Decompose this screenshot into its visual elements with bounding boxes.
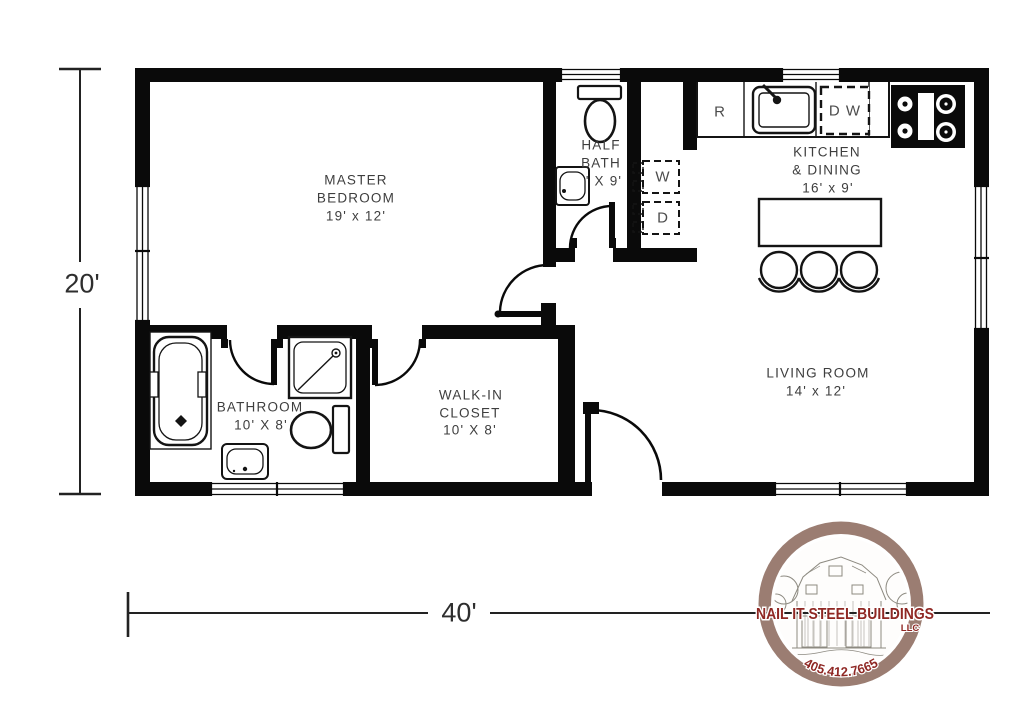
closet-label-1: WALK-IN <box>439 388 503 403</box>
living-room-size: 14' x 12' <box>786 384 846 399</box>
closet-label-2: CLOSET <box>439 406 500 421</box>
jamb-master-door <box>541 303 556 325</box>
refrigerator-label: R <box>714 104 726 121</box>
halfbath-sink <box>556 167 589 205</box>
wall-bath-closet-divider <box>356 339 370 482</box>
window-halfbath-top <box>560 68 622 82</box>
window-kitchen-top <box>781 68 841 82</box>
master-bedroom-label-1: MASTER <box>324 173 387 188</box>
halfbath-toilet <box>578 86 621 142</box>
wall-halfbath-bottom-a <box>543 248 575 262</box>
wall-master-east <box>543 68 556 267</box>
half-bath-label-2: BATH <box>581 156 621 171</box>
jamb-bath-door-left <box>221 339 228 348</box>
kitchen-sink <box>753 85 815 133</box>
jamb-bath-door-right <box>276 339 283 348</box>
island-stools <box>759 252 879 292</box>
kitchen-island <box>759 199 881 246</box>
washer-label: W <box>655 169 670 186</box>
entry-door-opening <box>592 482 662 496</box>
logo-company-text: NAIL IT STEEL BUILDINGS <box>756 606 934 623</box>
kitchen-size: 16' x 9' <box>802 181 854 196</box>
bathtub <box>150 332 211 449</box>
entry-door <box>585 410 661 482</box>
kitchen-label-1: KITCHEN <box>793 145 861 160</box>
kitchen-label-2: & DINING <box>792 163 862 178</box>
master-bedroom-size: 19' x 12' <box>326 209 386 224</box>
closet-size: 10' X 8' <box>443 423 497 438</box>
logo-entity-text: LLC <box>901 623 920 634</box>
window-bathroom-bottom <box>210 482 345 496</box>
shower <box>289 337 351 398</box>
wall-halfbath-east <box>627 68 641 262</box>
width-dimension-label: 40' <box>435 598 482 629</box>
logo <box>756 519 926 689</box>
bathroom-sink <box>222 444 268 479</box>
wall-master-bottom-c <box>422 325 575 339</box>
bathroom-size: 10' X 8' <box>234 418 288 433</box>
window-living-bottom <box>774 482 908 496</box>
bathroom-door <box>230 339 277 385</box>
window-master-left <box>135 185 150 322</box>
dryer-label: D <box>657 210 669 227</box>
floor-plan-canvas: NAIL IT STEEL BUILDINGS LLC 405.412.7665… <box>0 0 1023 719</box>
bathroom-label: BATHROOM <box>217 400 304 415</box>
master-bedroom-label-2: BEDROOM <box>317 191 395 206</box>
living-room-label: LIVING ROOM <box>766 366 869 381</box>
window-living-right <box>974 185 989 330</box>
floor-plan-drawing: NAIL IT STEEL BUILDINGS LLC 405.412.7665 <box>0 0 1023 719</box>
dishwasher-label: D W <box>829 103 861 120</box>
stove <box>891 85 965 148</box>
wall-wd-east <box>683 68 697 150</box>
half-bath-size: ' X 9' <box>586 174 622 189</box>
height-dimension-label: 20' <box>64 269 99 300</box>
wall-closet-east <box>558 325 575 482</box>
half-bath-label-1: HALF <box>581 138 620 153</box>
closet-door <box>372 339 420 385</box>
wall-halfbath-bottom-b <box>613 248 697 262</box>
master-bedroom-door <box>495 265 549 318</box>
